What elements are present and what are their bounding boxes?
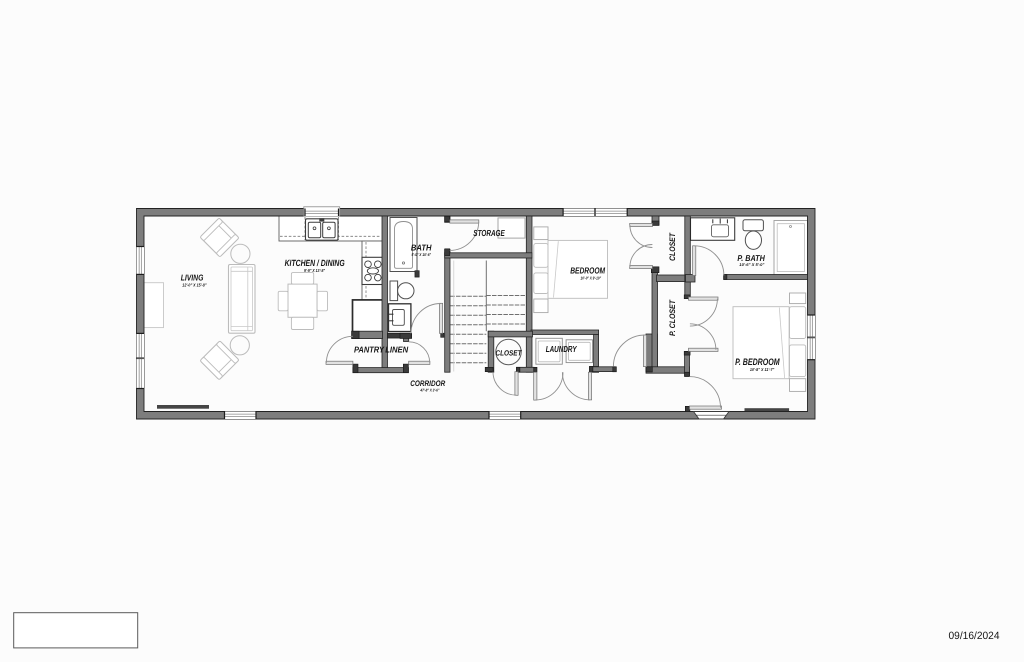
svg-text:LIVING: LIVING (181, 272, 204, 282)
svg-text:10'-6" X 5'-0": 10'-6" X 5'-0" (739, 262, 764, 267)
svg-text:CLOSET: CLOSET (668, 232, 677, 261)
svg-text:LINEN: LINEN (385, 344, 409, 354)
svg-text:10'-0" X 9'-10": 10'-0" X 9'-10" (581, 275, 602, 280)
svg-text:KITCHEN / DINING: KITCHEN / DINING (285, 258, 345, 268)
svg-text:CLOSET: CLOSET (496, 348, 523, 357)
svg-text:P. CLOSET: P. CLOSET (668, 299, 677, 336)
svg-text:5'-0" X 10'-6": 5'-0" X 10'-6" (412, 252, 432, 257)
svg-text:PANTRY: PANTRY (354, 344, 385, 354)
svg-text:9'-9" X 13'-8": 9'-9" X 13'-8" (304, 268, 326, 273)
svg-text:10'-8" X 11'-7": 10'-8" X 11'-7" (750, 367, 775, 372)
svg-text:BEDROOM: BEDROOM (570, 266, 605, 276)
svg-text:STORAGE: STORAGE (473, 228, 505, 238)
svg-text:12'-0" X 15'-8": 12'-0" X 15'-8" (182, 282, 207, 287)
svg-text:LAUNDRY: LAUNDRY (546, 344, 578, 354)
svg-text:47'-8" X 3'-6": 47'-8" X 3'-6" (420, 388, 440, 393)
svg-text:CORRIDOR: CORRIDOR (410, 379, 445, 388)
svg-text:BATH: BATH (411, 243, 432, 253)
svg-text:09/16/2024: 09/16/2024 (949, 630, 1000, 642)
svg-text:P. BEDROOM: P. BEDROOM (735, 356, 780, 367)
